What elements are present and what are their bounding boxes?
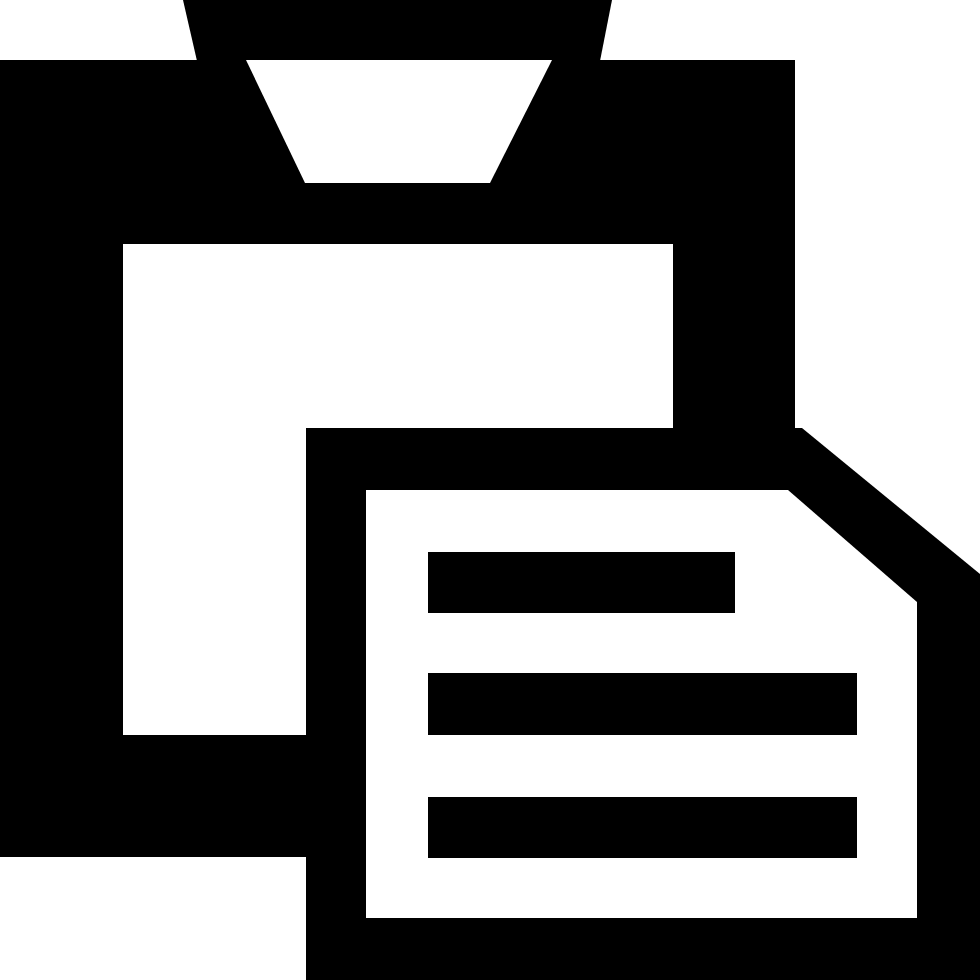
document-text-line-1 [428, 552, 735, 613]
document-text-line-3 [428, 797, 857, 858]
clipboard-clip-tab [183, 0, 612, 61]
paste-icon [0, 0, 980, 980]
icon-canvas [0, 0, 980, 980]
document-text-line-2 [428, 673, 857, 735]
